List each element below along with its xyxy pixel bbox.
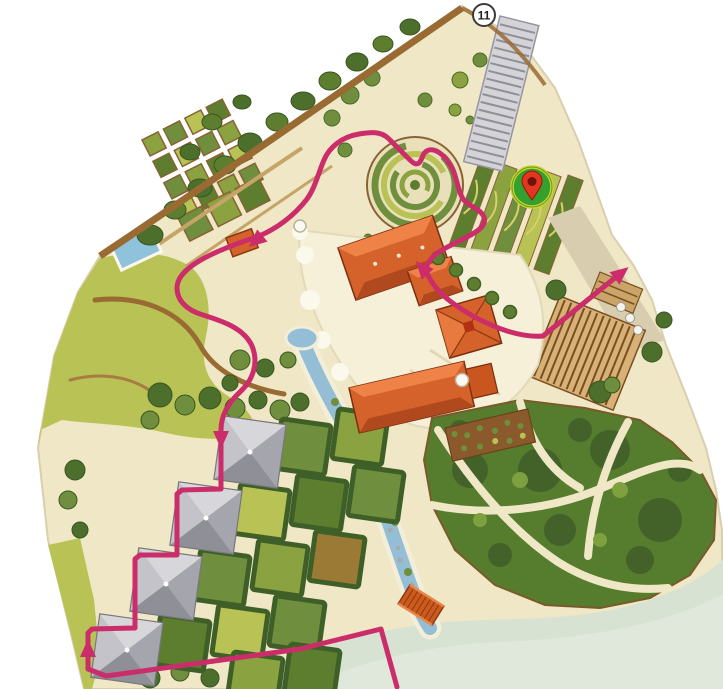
garden-map: 11: [0, 0, 723, 689]
pyramid-pavilion: [214, 416, 286, 488]
poi-badge-11[interactable]: 11: [473, 4, 495, 26]
poi-badge-label: 11: [478, 9, 491, 23]
pyramid-pavilion: [130, 548, 202, 620]
location-pin-icon[interactable]: [512, 167, 552, 207]
garden-map-screenshot: 11: [0, 0, 723, 689]
